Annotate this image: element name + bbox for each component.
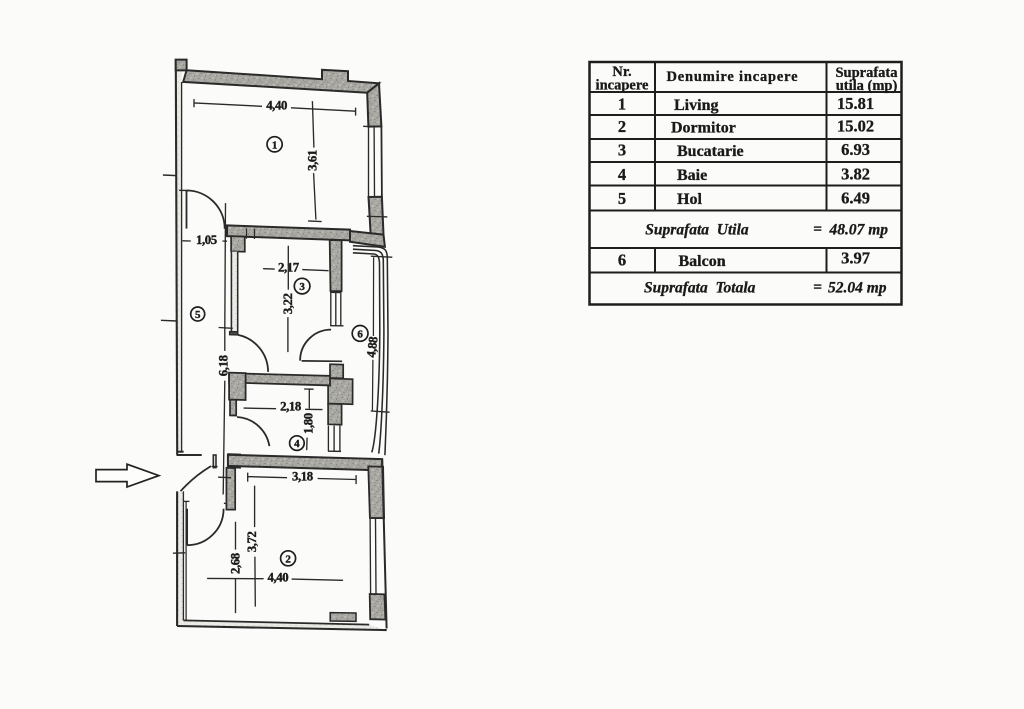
svg-text:5: 5	[195, 309, 201, 321]
svg-text:4: 4	[294, 438, 300, 450]
svg-text:3: 3	[299, 281, 305, 293]
svg-text:3,72: 3,72	[245, 532, 259, 553]
svg-text:3,61: 3,61	[305, 150, 319, 171]
svg-text:Suprafata Utila: Suprafata Utila	[645, 222, 749, 239]
svg-text:utila (mp): utila (mp)	[836, 78, 898, 94]
svg-text:15.02: 15.02	[837, 117, 874, 136]
svg-text:Hol: Hol	[677, 191, 702, 208]
svg-text:=: =	[813, 221, 822, 238]
svg-text:3.97: 3.97	[841, 249, 870, 268]
svg-text:3,18: 3,18	[292, 469, 313, 483]
svg-text:2: 2	[618, 117, 626, 136]
svg-text:Dormitor: Dormitor	[671, 120, 736, 137]
svg-text:2: 2	[285, 553, 291, 565]
svg-text:2,18: 2,18	[280, 400, 301, 414]
svg-text:4,40: 4,40	[268, 570, 289, 584]
svg-text:4,40: 4,40	[266, 99, 287, 113]
svg-text:3.82: 3.82	[841, 165, 870, 184]
svg-text:52.04 mp: 52.04 mp	[828, 280, 887, 297]
svg-text:Bucatarie: Bucatarie	[677, 143, 744, 160]
svg-text:Suprafata Totala: Suprafata Totala	[644, 280, 756, 297]
svg-text:1,05: 1,05	[196, 233, 217, 247]
svg-text:6.49: 6.49	[841, 189, 870, 208]
svg-text:1,80: 1,80	[301, 413, 315, 434]
svg-text:6,18: 6,18	[217, 355, 231, 376]
svg-text:=: =	[813, 279, 822, 296]
svg-text:4: 4	[618, 165, 626, 184]
svg-text:6: 6	[618, 251, 626, 270]
svg-text:3: 3	[618, 141, 626, 160]
svg-text:incapere: incapere	[596, 78, 649, 94]
svg-text:4,88: 4,88	[364, 336, 380, 358]
svg-text:Balcon: Balcon	[679, 253, 726, 270]
svg-text:Denumire incapere: Denumire incapere	[667, 69, 799, 85]
svg-text:1: 1	[618, 95, 626, 114]
svg-text:1: 1	[272, 139, 278, 151]
svg-text:2,68: 2,68	[228, 553, 242, 574]
svg-text:Living: Living	[674, 97, 718, 114]
svg-text:3,22: 3,22	[281, 293, 295, 314]
svg-text:6.93: 6.93	[841, 140, 870, 159]
svg-text:6: 6	[357, 328, 363, 340]
svg-text:15.81: 15.81	[837, 94, 874, 113]
svg-text:48.07 mp: 48.07 mp	[829, 222, 889, 239]
svg-text:5: 5	[618, 189, 626, 208]
svg-text:Baie: Baie	[677, 167, 707, 184]
